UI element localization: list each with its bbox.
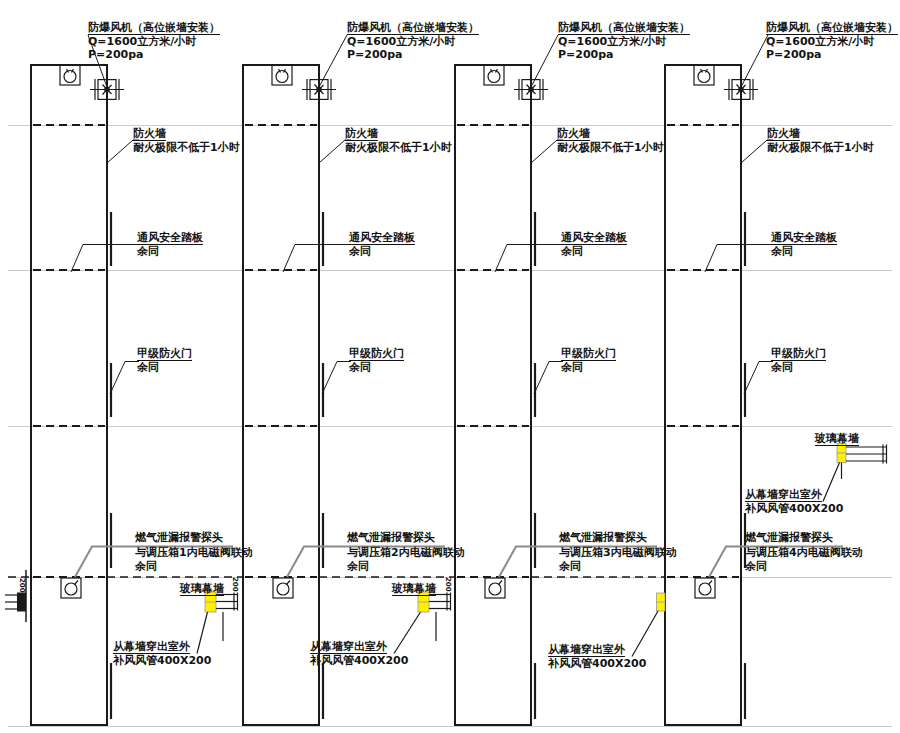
out-label-2: 从幕墙穿出室外 补风风管400X200 bbox=[310, 640, 408, 667]
gas-label-2: 燃气泄漏报警探头 与调压箱2内电磁阀联动 余同 bbox=[347, 531, 465, 575]
fan-label-2: 防爆风机（高位嵌墙安装） Q=1600立方米/小时 P=200pa bbox=[347, 21, 479, 62]
shaft-column-4 bbox=[665, 65, 773, 725]
vent-label-4: 通风安全踏板 余同 bbox=[771, 231, 837, 258]
duct-dim-1: 200 bbox=[231, 577, 239, 592]
door-label-1: 甲级防火门 余同 bbox=[137, 347, 192, 374]
vent-label-3: 通风安全踏板 余同 bbox=[561, 231, 627, 258]
fan-label-4: 防爆风机（高位嵌墙安装） Q=1600立方米/小时 P=200pa bbox=[766, 21, 898, 62]
drawing-canvas: 防爆风机（高位嵌墙安装） Q=1600立方米/小时 P=200pa 防爆风机（高… bbox=[0, 0, 900, 733]
out-label-4: 从幕墙穿出室外 补风风管400X200 bbox=[745, 488, 843, 515]
fan-flow: Q=1600立方米/小时 bbox=[88, 35, 220, 49]
duct-dim-edge: 200 bbox=[18, 578, 26, 593]
shaft-column-1 bbox=[31, 65, 139, 725]
firewall-label-4: 防火墙 耐火极限不低于1小时 bbox=[767, 127, 874, 154]
fan-pressure: P=200pa bbox=[88, 48, 220, 62]
vent-label-2: 通风安全踏板 余同 bbox=[349, 231, 415, 258]
shaft-elevation-linework bbox=[0, 0, 900, 733]
vent-label-1: 通风安全踏板 余同 bbox=[137, 231, 203, 258]
floor-lines bbox=[8, 126, 892, 727]
curtain-label-4: 玻璃幕墙 bbox=[815, 432, 859, 446]
curtain-label-1: 玻璃幕墙 bbox=[180, 582, 224, 596]
door-label-4: 甲级防火门 余同 bbox=[771, 347, 826, 374]
firewall-label-3: 防火墙 耐火极限不低于1小时 bbox=[557, 127, 664, 154]
fan-label-3: 防爆风机（高位嵌墙安装） Q=1600立方米/小时 P=200pa bbox=[558, 21, 690, 62]
out-label-1: 从幕墙穿出室外 补风风管400X200 bbox=[113, 640, 211, 667]
duct-dim-2: 200 bbox=[444, 577, 452, 592]
gas-label-4: 燃气泄漏报警探头 与调压箱4内电磁阀联动 余同 bbox=[745, 531, 863, 575]
curtain-label-2: 玻璃幕墙 bbox=[392, 582, 436, 596]
firewall-label-1: 防火墙 耐火极限不低于1小时 bbox=[133, 127, 240, 154]
fan-title: 防爆风机（高位嵌墙安装） bbox=[88, 21, 220, 35]
gas-label-3: 燃气泄漏报警探头 与调压箱3内电磁阀联动 余同 bbox=[559, 531, 677, 575]
shaft-column-2 bbox=[243, 65, 351, 725]
door-label-3: 甲级防火门 余同 bbox=[561, 347, 616, 374]
firewall-label-2: 防火墙 耐火极限不低于1小时 bbox=[345, 127, 452, 154]
out-label-3: 从幕墙穿出室外 补风风管400X200 bbox=[548, 643, 646, 670]
fan-label-1: 防爆风机（高位嵌墙安装） Q=1600立方米/小时 P=200pa bbox=[88, 21, 220, 62]
shaft-column-3 bbox=[455, 65, 563, 725]
door-label-2: 甲级防火门 余同 bbox=[349, 347, 404, 374]
gas-label-1: 燃气泄漏报警探头 与调压箱1内电磁阀联动 余同 bbox=[135, 531, 253, 575]
